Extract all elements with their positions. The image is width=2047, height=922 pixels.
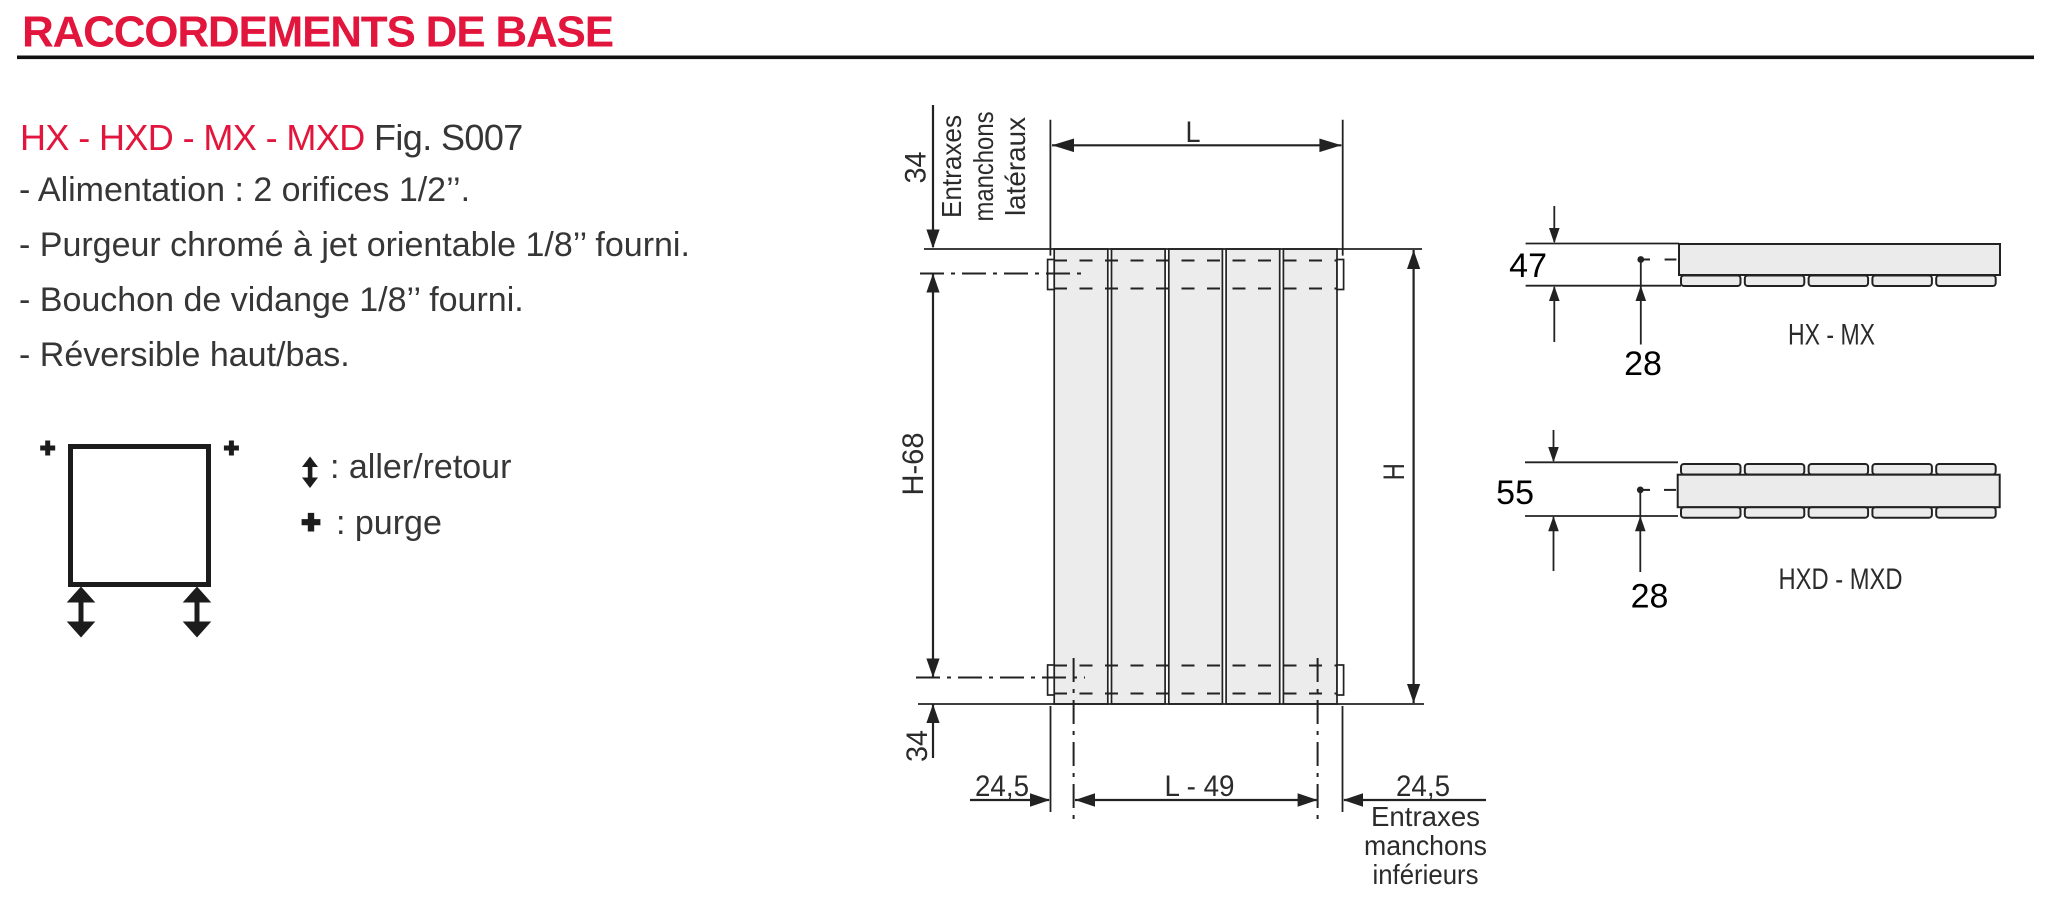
svg-text:47: 47 — [1509, 247, 1547, 285]
svg-text:- Alimentation : 2 orifices 1/: - Alimentation : 2 orifices 1/2’’. — [19, 171, 470, 209]
svg-text:HX - MX: HX - MX — [1788, 319, 1875, 352]
svg-text:H-68: H-68 — [897, 433, 930, 496]
svg-text:- Purgeur chromé à jet orienta: - Purgeur chromé à jet orientable 1/8’’ … — [19, 226, 690, 264]
svg-text:latéraux: latéraux — [1000, 117, 1031, 216]
svg-text:manchons: manchons — [1364, 830, 1487, 861]
svg-text:HX - HXD - MX - MXD Fig. S007: HX - HXD - MX - MXD Fig. S007 — [20, 117, 523, 158]
svg-text:- Réversible haut/bas.: - Réversible haut/bas. — [19, 336, 350, 374]
svg-text:28: 28 — [1624, 345, 1662, 383]
svg-text:L - 49: L - 49 — [1165, 770, 1235, 803]
svg-text:: aller/retour: : aller/retour — [330, 448, 511, 486]
svg-text:RACCORDEMENTS DE BASE: RACCORDEMENTS DE BASE — [22, 8, 613, 57]
svg-text:Entraxes: Entraxes — [936, 115, 967, 218]
svg-text:34: 34 — [900, 152, 933, 184]
svg-text:24,5: 24,5 — [975, 770, 1029, 803]
svg-text:34: 34 — [901, 730, 934, 762]
svg-text:HXD - MXD: HXD - MXD — [1779, 563, 1903, 596]
svg-text:L: L — [1186, 116, 1201, 149]
svg-text:28: 28 — [1631, 578, 1669, 616]
svg-text:inférieurs: inférieurs — [1373, 859, 1479, 890]
svg-text:H: H — [1378, 463, 1411, 480]
svg-text:- Bouchon de vidange 1/8’’ fou: - Bouchon de vidange 1/8’’ fourni. — [19, 281, 524, 319]
svg-text:24,5: 24,5 — [1396, 770, 1450, 803]
svg-text:55: 55 — [1496, 474, 1534, 512]
svg-text:manchons: manchons — [968, 112, 999, 222]
svg-text:: purge: : purge — [336, 504, 442, 542]
svg-text:Entraxes: Entraxes — [1371, 801, 1480, 832]
